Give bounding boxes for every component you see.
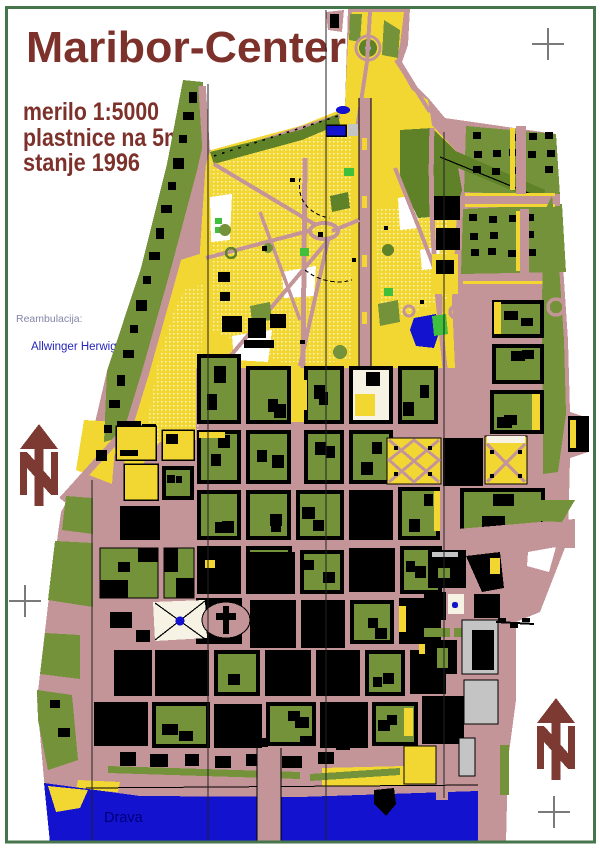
svg-text:Drava: Drava [104,810,144,826]
svg-text:stanje 1996: stanje 1996 [23,149,140,177]
svg-text:plastnice na 5m: plastnice na 5m [23,124,183,152]
svg-text:Reambulacija:: Reambulacija: [16,313,83,325]
svg-text:Allwinger Herwig: Allwinger Herwig [31,341,117,353]
svg-text:Maribor-Center: Maribor-Center [26,23,346,72]
svg-text:merilo 1:5000: merilo 1:5000 [23,98,159,126]
